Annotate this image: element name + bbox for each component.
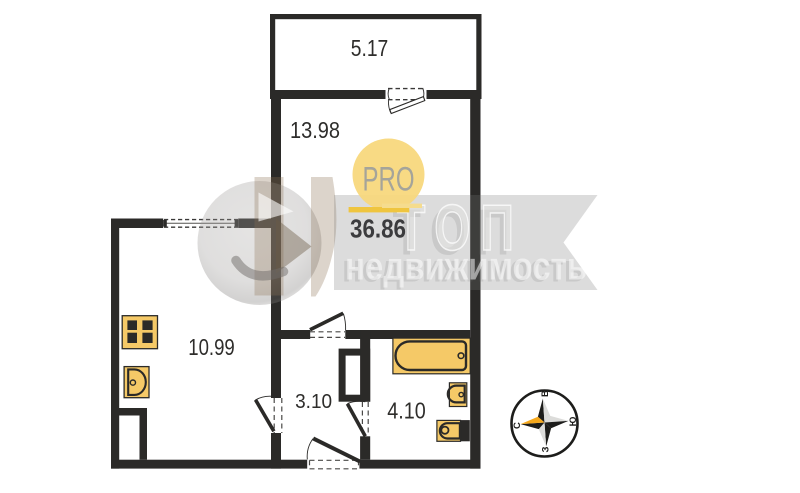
svg-text:Ю: Ю xyxy=(568,416,579,426)
svg-text:13.98: 13.98 xyxy=(290,117,340,143)
svg-text:С: С xyxy=(512,422,523,429)
svg-text:PRO: PRO xyxy=(363,161,415,199)
svg-text:36.86: 36.86 xyxy=(350,214,406,244)
svg-text:4.10: 4.10 xyxy=(387,398,426,424)
svg-text:3.10: 3.10 xyxy=(295,391,332,413)
svg-text:З: З xyxy=(541,446,552,452)
svg-text:В: В xyxy=(540,390,551,397)
svg-text:10.99: 10.99 xyxy=(188,334,235,360)
svg-text:5.17: 5.17 xyxy=(351,35,389,61)
svg-text:недвижимость: недвижимость xyxy=(345,246,587,289)
